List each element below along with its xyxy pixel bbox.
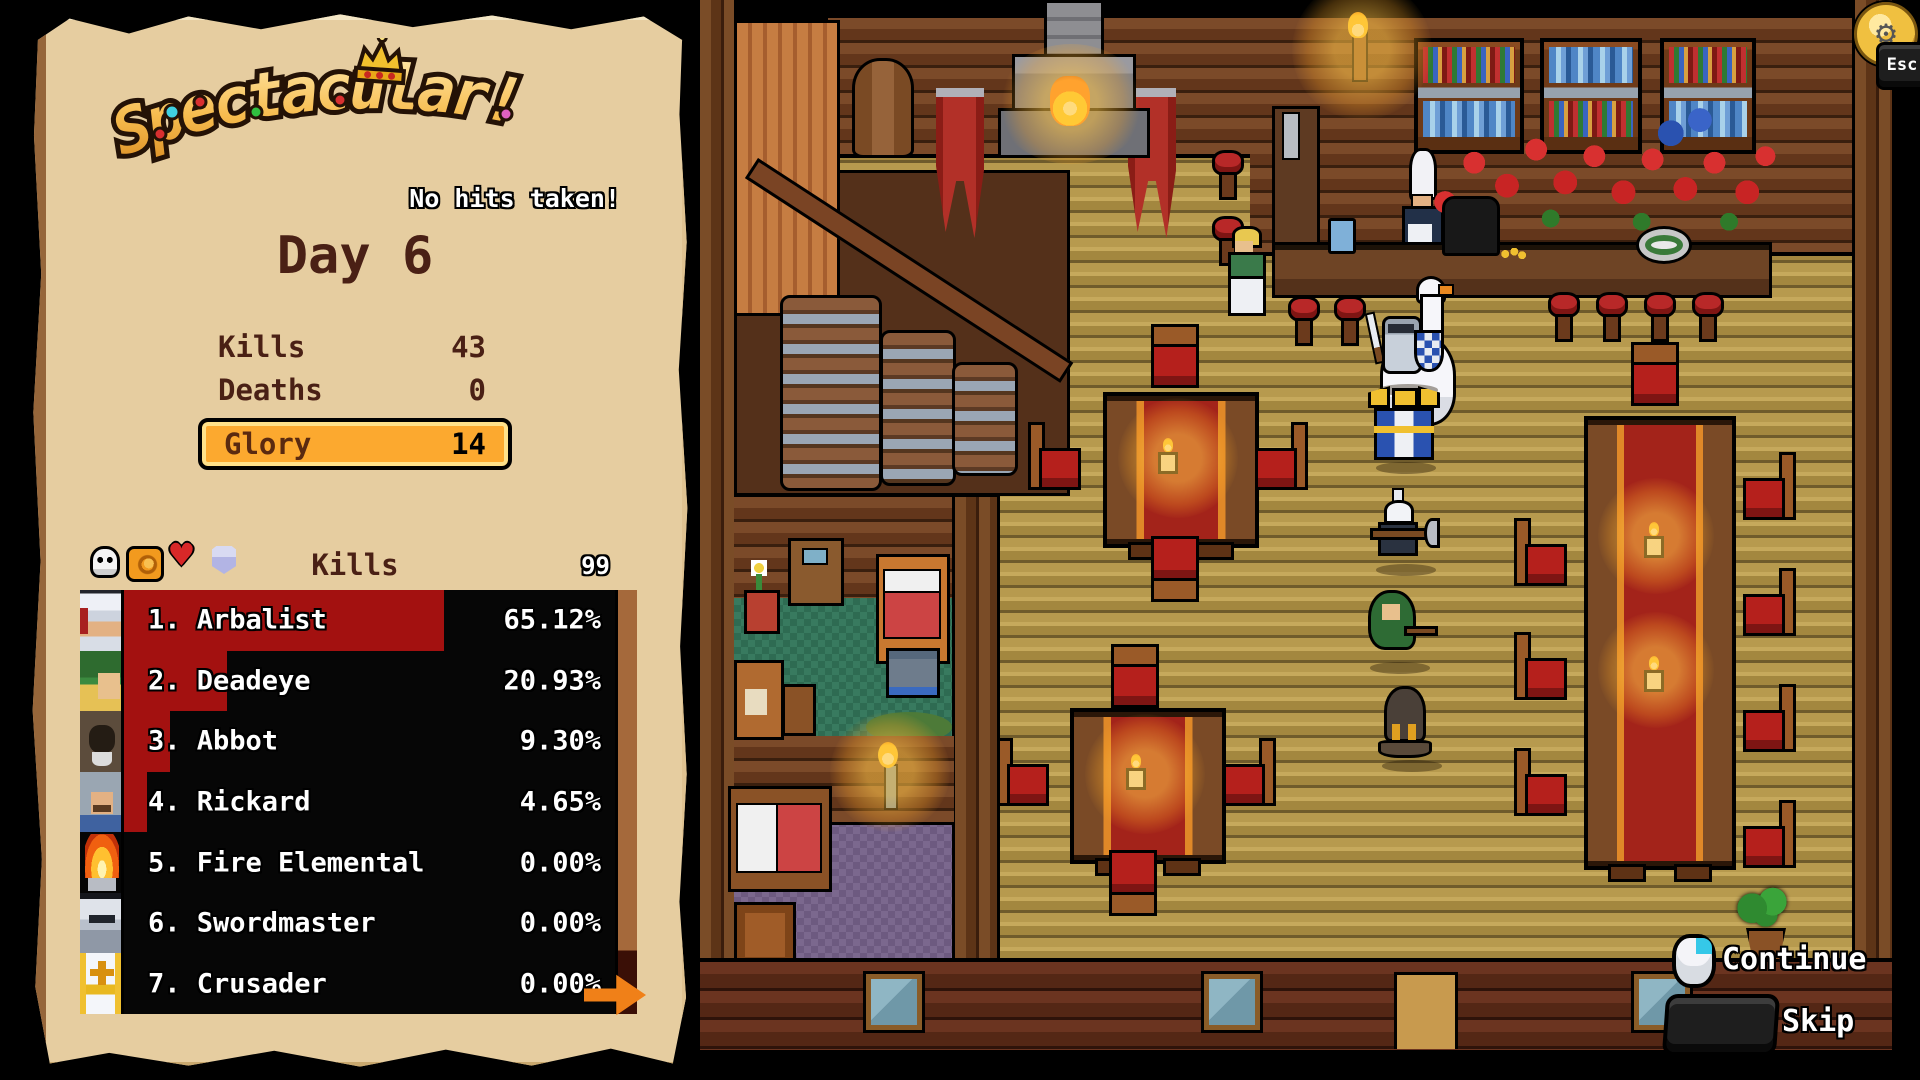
skip-button[interactable]: Skip — [1782, 1004, 1892, 1039]
storage-chest — [886, 648, 940, 698]
leaderboard-rows: 1. Arbalist 65.12% 2. Deadeye 20.93% 3. … — [80, 590, 637, 1014]
swordmaster-npc — [1368, 308, 1448, 392]
candle — [1126, 754, 1146, 790]
dresser — [734, 660, 784, 740]
leaderboard-percent: 4.65% — [520, 787, 601, 818]
deadeye-npc — [1360, 586, 1440, 670]
chair — [1148, 324, 1204, 398]
bedroom-stool — [782, 684, 816, 736]
right-wall — [1852, 0, 1892, 1012]
hanging-cloak — [852, 58, 914, 158]
portrait-arbalist — [80, 590, 124, 651]
chair — [1514, 748, 1572, 828]
heart-icon[interactable]: ♥ — [170, 538, 200, 572]
bedroom-divider-wall — [952, 494, 1000, 972]
bar-stool — [1334, 296, 1366, 348]
portrait-crusader — [80, 953, 124, 1014]
bar-stool — [1644, 292, 1676, 344]
mouse-icon — [1672, 934, 1716, 988]
esc-key[interactable]: Esc — [1876, 42, 1920, 90]
kill-share-bar — [124, 772, 147, 833]
crown-icon — [355, 38, 406, 83]
crusader-npc — [1366, 386, 1446, 470]
chair — [1108, 644, 1164, 718]
fireplace-fire — [1050, 76, 1090, 126]
leaderboard-row-body: 6. Swordmaster 0.00% — [124, 893, 615, 954]
chair — [1028, 422, 1086, 502]
leaderboard-row-body: 1. Arbalist 65.12% — [124, 590, 615, 651]
leaderboard-sort-header[interactable]: Kills — [270, 548, 440, 582]
continue-button[interactable]: Continue — [1722, 942, 1892, 977]
candle — [1644, 522, 1664, 558]
spacebar-key-icon — [1662, 994, 1780, 1056]
day-title: Day 6 — [30, 226, 680, 286]
arbalist-npc — [1366, 488, 1446, 572]
chair — [996, 738, 1054, 818]
leaderboard-row-body: 7. Crusader 0.00% — [124, 953, 615, 1014]
plate — [1636, 226, 1692, 264]
portrait-rickard — [80, 772, 124, 833]
leaderboard-name: 2. Deadeye — [148, 665, 311, 696]
leaderboard-row: 6. Swordmaster 0.00% — [80, 893, 637, 954]
chair — [1628, 342, 1684, 416]
window — [1204, 974, 1260, 1030]
chair — [1514, 632, 1572, 712]
leaderboard-name: 1. Arbalist — [148, 605, 327, 636]
candle — [1644, 656, 1664, 692]
kettle — [1442, 196, 1500, 256]
bedroom-torch — [884, 764, 898, 810]
stat-value: 0 — [469, 373, 486, 407]
door-window — [802, 548, 828, 565]
portrait-fire — [80, 832, 124, 893]
glory-value: 14 — [451, 427, 486, 461]
leaderboard-percent: 0.00% — [520, 847, 601, 878]
barrel-stack — [952, 362, 1018, 476]
chair — [1738, 452, 1796, 532]
barrel-stack — [880, 330, 956, 486]
leaderboard-row: 4. Rickard 4.65% — [80, 772, 637, 833]
results-panel: Spectacular! No hits taken! Day 6 Kills … — [30, 8, 690, 1072]
leaderboard-percent: 0.00% — [520, 908, 601, 939]
leaderboard-row-body: 5. Fire Elemental 0.00% — [124, 832, 615, 893]
candle — [1158, 438, 1178, 474]
leaderboard-row: 2. Deadeye 20.93% — [80, 651, 637, 712]
stat-label: Deaths — [218, 373, 323, 407]
leaderboard-row-body: 4. Rickard 4.65% — [124, 772, 615, 833]
window — [866, 974, 922, 1030]
spectacular-logo: Spectacular! — [108, 38, 598, 198]
long-table — [1584, 416, 1736, 870]
leaderboard-percent: 9.30% — [520, 726, 601, 757]
torch-flame — [1348, 12, 1368, 38]
esc-key-label: Esc — [1887, 55, 1918, 75]
bar-stool — [1548, 292, 1580, 344]
stat-value: 43 — [451, 330, 486, 364]
leaderboard-name: 6. Swordmaster — [148, 908, 376, 939]
leaderboard-name: 4. Rickard — [148, 787, 311, 818]
dining-table — [1070, 708, 1226, 864]
blue-cup — [1328, 218, 1356, 254]
skull-icon[interactable] — [90, 546, 120, 578]
stat-label: Kills — [218, 330, 305, 364]
leaderboard-name: 7. Crusader — [148, 968, 327, 999]
barrel-stack — [780, 295, 882, 491]
portrait-deadeye — [80, 651, 124, 712]
door-gap — [1394, 972, 1458, 1049]
leaderboard: 1. Arbalist 65.12% 2. Deadeye 20.93% 3. … — [80, 590, 637, 1014]
bar-stool — [1692, 292, 1724, 344]
bed — [728, 786, 832, 892]
stat-row-deaths: Deaths 0 — [218, 373, 486, 407]
scale-max-value: 99 — [530, 552, 610, 580]
glory-label: Glory — [224, 427, 311, 461]
leaderboard-name: 5. Fire Elemental — [148, 847, 424, 878]
bedroom-torch-flame — [878, 742, 898, 768]
monk-npc — [1372, 684, 1452, 768]
stat-row-kills: Kills 43 — [218, 330, 486, 364]
leaderboard-name: 3. Abbot — [148, 726, 278, 757]
glory-box: Glory 14 — [198, 418, 512, 470]
fist-icon[interactable] — [126, 546, 164, 582]
leaderboard-percent: 20.93% — [503, 665, 601, 696]
chair — [1738, 684, 1796, 764]
bar-stool — [1596, 292, 1628, 344]
beer-tap — [1282, 112, 1300, 160]
leaderboard-scrollbar[interactable] — [615, 590, 637, 1014]
portrait-swordmaster — [80, 893, 124, 954]
leaderboard-row: 5. Fire Elemental 0.00% — [80, 832, 637, 893]
bar-stool — [1212, 150, 1244, 202]
leaderboard-row-body: 2. Deadeye 20.93% — [124, 651, 615, 712]
chair — [1738, 800, 1796, 880]
tavern-scene: Continue Skip — [700, 0, 1892, 1080]
chair — [1218, 738, 1276, 818]
chair — [1148, 536, 1204, 610]
portrait-abbot — [80, 711, 124, 772]
barmaid-npc — [1220, 226, 1268, 314]
subtitle-banner: No hits taken! — [290, 184, 620, 213]
chair — [1738, 568, 1796, 648]
shield-icon[interactable] — [212, 546, 236, 574]
chair — [1106, 850, 1162, 924]
leaderboard-row: 7. Crusader 0.00% — [80, 953, 637, 1014]
leaderboard-row: 1. Arbalist 65.12% — [80, 590, 637, 651]
chair — [1250, 422, 1308, 502]
flower-pot — [742, 560, 776, 632]
leaderboard-row: 3. Abbot 9.30% — [80, 711, 637, 772]
coins — [1500, 248, 1526, 260]
leaderboard-percent: 65.12% — [503, 605, 601, 636]
dining-table — [1103, 392, 1259, 548]
leaderboard-row-body: 3. Abbot 9.30% — [124, 711, 615, 772]
bar-stool — [1288, 296, 1320, 348]
chair — [1514, 518, 1572, 598]
